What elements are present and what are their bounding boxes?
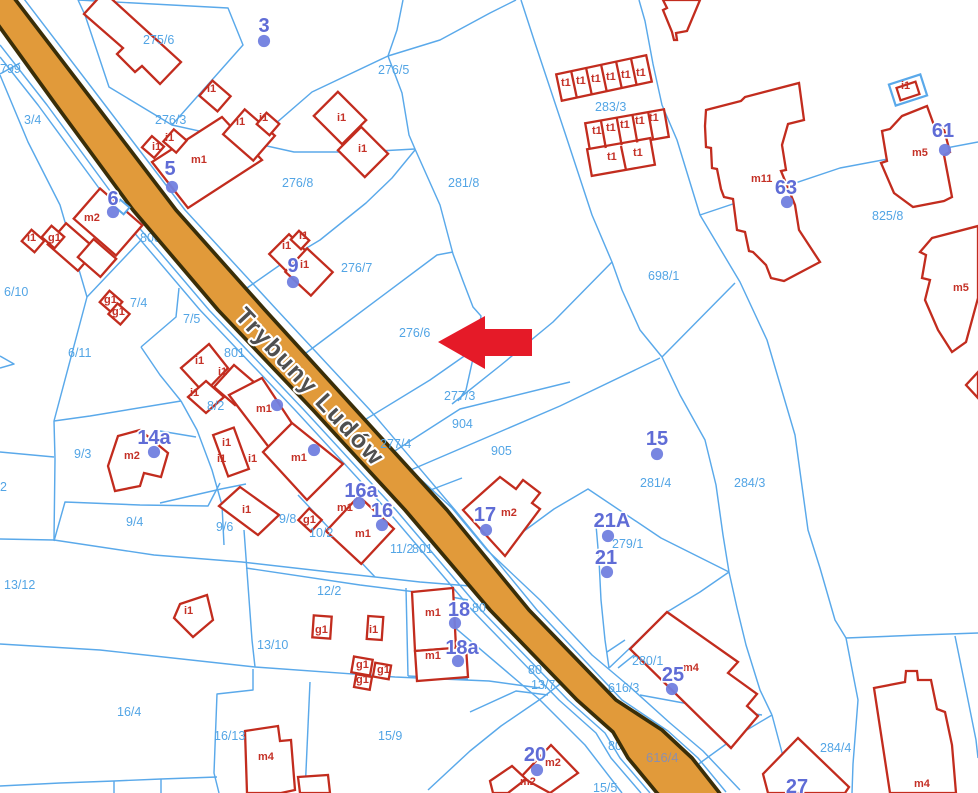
svg-text:t1: t1 xyxy=(633,147,643,159)
svg-text:m1: m1 xyxy=(291,452,307,464)
svg-text:284/3: 284/3 xyxy=(734,476,765,490)
svg-text:9/3: 9/3 xyxy=(74,447,91,461)
svg-text:9/8: 9/8 xyxy=(279,512,296,526)
svg-text:t1: t1 xyxy=(576,75,586,87)
svg-text:t1: t1 xyxy=(591,73,601,85)
svg-text:g1: g1 xyxy=(356,674,369,686)
svg-text:281/8: 281/8 xyxy=(448,176,479,190)
svg-text:281/4: 281/4 xyxy=(640,476,671,490)
svg-text:t1: t1 xyxy=(606,122,616,134)
svg-text:m1: m1 xyxy=(191,154,207,166)
svg-text:20: 20 xyxy=(524,744,546,766)
svg-text:t1: t1 xyxy=(636,67,646,79)
svg-text:m4: m4 xyxy=(258,751,275,763)
svg-text:63: 63 xyxy=(775,177,797,199)
svg-text:t1: t1 xyxy=(606,71,616,83)
svg-text:t1: t1 xyxy=(620,119,630,131)
svg-text:5: 5 xyxy=(164,158,175,180)
svg-text:m5: m5 xyxy=(912,147,928,159)
svg-text:275/6: 275/6 xyxy=(143,33,174,47)
svg-text:t1: t1 xyxy=(649,112,659,124)
svg-text:g1: g1 xyxy=(104,294,117,306)
svg-text:i1: i1 xyxy=(369,624,378,636)
svg-text:9: 9 xyxy=(287,255,298,277)
svg-text:i1: i1 xyxy=(165,132,174,144)
svg-text:i1: i1 xyxy=(248,453,257,465)
svg-text:6/11: 6/11 xyxy=(68,346,91,360)
svg-text:7/4: 7/4 xyxy=(130,296,147,310)
svg-text:616/4: 616/4 xyxy=(646,750,679,765)
svg-text:18: 18 xyxy=(448,599,470,621)
svg-text:27: 27 xyxy=(786,776,808,793)
svg-text:m11: m11 xyxy=(751,173,772,185)
svg-text:15/5: 15/5 xyxy=(593,781,617,793)
svg-text:80: 80 xyxy=(472,601,486,615)
svg-text:277/4: 277/4 xyxy=(380,437,411,451)
svg-text:i1: i1 xyxy=(259,112,268,124)
svg-text:801: 801 xyxy=(224,346,245,360)
svg-text:825/8: 825/8 xyxy=(872,209,903,223)
svg-text:t1: t1 xyxy=(607,151,617,163)
svg-text:801: 801 xyxy=(412,542,433,556)
svg-text:280/1: 280/1 xyxy=(632,654,663,668)
svg-text:g1: g1 xyxy=(303,514,316,526)
svg-text:g1: g1 xyxy=(112,306,125,318)
svg-text:21: 21 xyxy=(595,547,617,569)
svg-text:11/2: 11/2 xyxy=(390,542,413,556)
svg-text:i1: i1 xyxy=(184,605,193,617)
svg-text:21A: 21A xyxy=(594,510,631,532)
svg-text:284/4: 284/4 xyxy=(820,741,851,755)
svg-text:i1: i1 xyxy=(236,116,245,128)
svg-text:3: 3 xyxy=(258,15,269,37)
svg-text:m4: m4 xyxy=(914,778,931,790)
svg-text:61: 61 xyxy=(932,120,954,142)
svg-text:t1: t1 xyxy=(635,115,645,127)
svg-text:m2: m2 xyxy=(501,507,517,519)
svg-text:i1: i1 xyxy=(901,80,910,92)
svg-text:m4: m4 xyxy=(683,662,700,674)
svg-text:698/1: 698/1 xyxy=(648,269,679,283)
svg-text:i1: i1 xyxy=(217,453,226,465)
svg-text:6/10: 6/10 xyxy=(4,285,28,299)
svg-text:13/10: 13/10 xyxy=(257,638,288,652)
svg-text:i1: i1 xyxy=(282,240,291,252)
svg-text:2: 2 xyxy=(0,480,7,494)
svg-text:m2: m2 xyxy=(545,757,561,769)
svg-text:8/2: 8/2 xyxy=(207,399,224,413)
svg-text:9/4: 9/4 xyxy=(126,515,143,529)
svg-text:799: 799 xyxy=(0,62,21,76)
svg-text:i1: i1 xyxy=(207,83,216,95)
svg-text:t1: t1 xyxy=(621,69,631,81)
svg-text:g1: g1 xyxy=(315,624,328,636)
svg-text:80: 80 xyxy=(528,663,542,677)
svg-text:276/3: 276/3 xyxy=(155,113,186,127)
svg-text:12/2: 12/2 xyxy=(317,584,341,598)
svg-text:m1: m1 xyxy=(425,607,441,619)
svg-text:i1: i1 xyxy=(358,143,367,155)
svg-text:m1: m1 xyxy=(425,650,441,662)
svg-text:276/7: 276/7 xyxy=(341,261,372,275)
svg-text:m2: m2 xyxy=(84,212,100,224)
svg-text:16/13: 16/13 xyxy=(214,729,245,743)
svg-text:15/9: 15/9 xyxy=(378,729,402,743)
svg-text:15: 15 xyxy=(646,428,668,450)
svg-text:m1: m1 xyxy=(256,403,272,415)
svg-text:i1: i1 xyxy=(190,387,199,399)
svg-text:17: 17 xyxy=(474,504,496,526)
svg-text:904: 904 xyxy=(452,417,473,431)
svg-text:i1: i1 xyxy=(152,141,161,153)
svg-text:i1: i1 xyxy=(300,259,309,271)
svg-text:i1: i1 xyxy=(299,230,308,242)
svg-text:25: 25 xyxy=(662,664,684,686)
svg-text:i1: i1 xyxy=(337,112,346,124)
svg-text:905: 905 xyxy=(491,444,512,458)
svg-text:277/3: 277/3 xyxy=(444,389,475,403)
svg-text:m1: m1 xyxy=(355,528,371,540)
svg-text:16/4: 16/4 xyxy=(117,705,141,719)
svg-text:3/4: 3/4 xyxy=(24,113,41,127)
svg-text:616/3: 616/3 xyxy=(608,681,639,695)
svg-text:t1: t1 xyxy=(592,125,602,137)
svg-text:i1: i1 xyxy=(222,437,231,449)
svg-text:g1: g1 xyxy=(48,232,61,244)
svg-text:m2: m2 xyxy=(124,450,140,462)
svg-text:16: 16 xyxy=(371,500,393,522)
svg-text:m2: m2 xyxy=(520,776,536,788)
svg-text:13/7: 13/7 xyxy=(531,678,555,692)
svg-text:t1: t1 xyxy=(561,77,571,89)
svg-text:18a: 18a xyxy=(445,637,479,659)
svg-text:i1: i1 xyxy=(218,366,227,378)
svg-text:7/5: 7/5 xyxy=(183,312,200,326)
svg-text:m1: m1 xyxy=(337,502,353,514)
svg-text:10/2: 10/2 xyxy=(309,526,333,540)
svg-text:m5: m5 xyxy=(953,282,969,294)
svg-text:13/12: 13/12 xyxy=(4,578,35,592)
svg-text:276/6: 276/6 xyxy=(399,326,430,340)
svg-text:g1: g1 xyxy=(377,664,390,676)
svg-text:i1: i1 xyxy=(195,355,204,367)
svg-text:9/6: 9/6 xyxy=(216,520,233,534)
svg-text:i1: i1 xyxy=(27,232,36,244)
svg-text:283/3: 283/3 xyxy=(595,100,626,114)
svg-text:276/8: 276/8 xyxy=(282,176,313,190)
svg-text:i1: i1 xyxy=(242,504,251,516)
svg-text:14a: 14a xyxy=(137,427,171,449)
svg-text:g1: g1 xyxy=(356,659,369,671)
svg-text:276/5: 276/5 xyxy=(378,63,409,77)
